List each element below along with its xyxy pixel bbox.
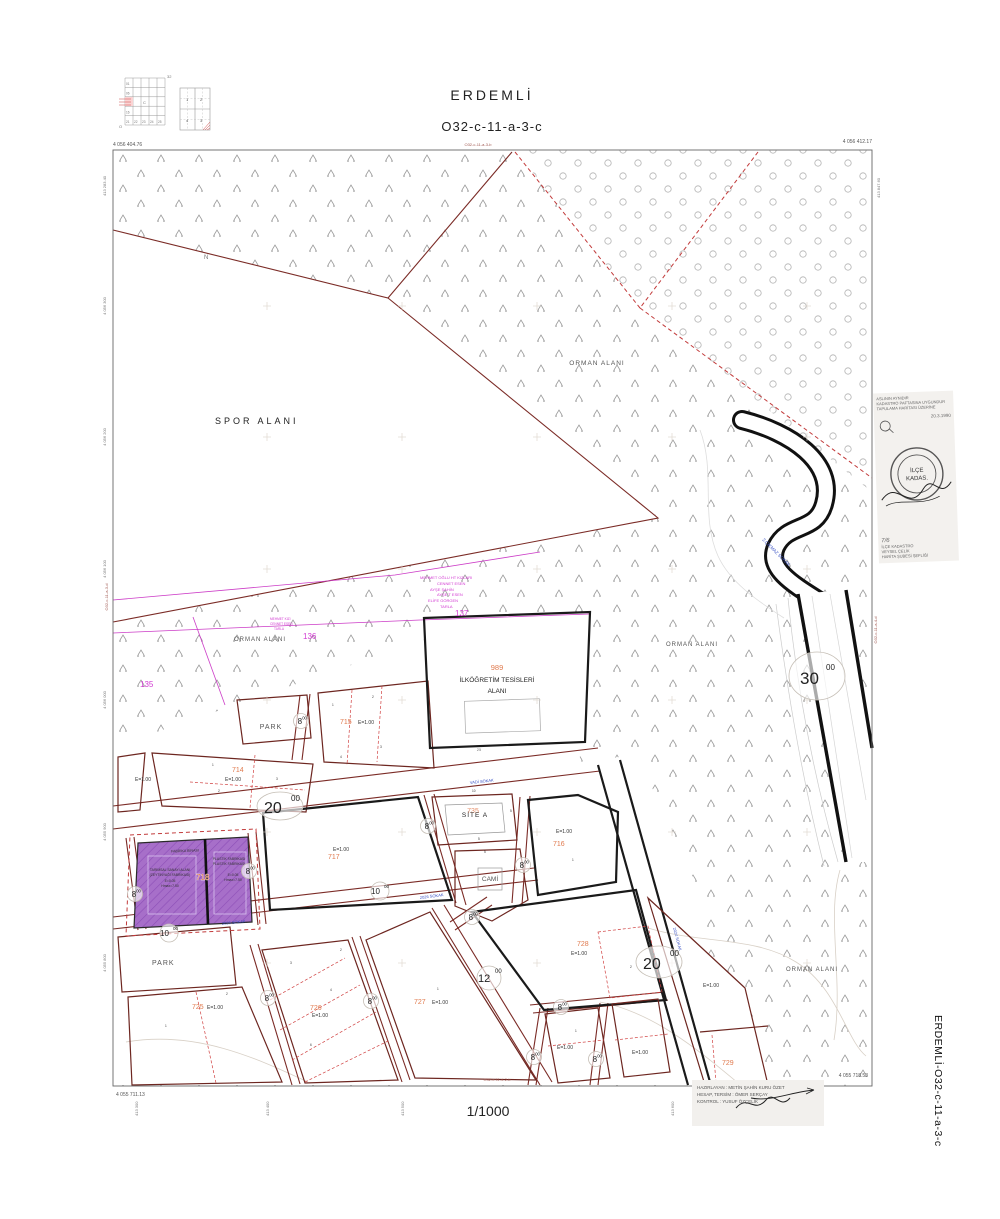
lot-number: 5 [484, 850, 486, 854]
arrow [751, 1088, 814, 1099]
index-cell: 06 [126, 92, 130, 96]
neighbor-right: O32-c-11-a-4-d [873, 616, 878, 643]
easting-label: 413 600 [670, 1101, 675, 1116]
lot-number: 1 [212, 763, 214, 767]
lot-number: 5 [478, 837, 480, 841]
road-width: 10 [160, 929, 169, 938]
road-width-dec: 00 [291, 794, 300, 803]
corner-tl: 4 056 404.76 [113, 142, 142, 148]
index-cell: 16 [126, 111, 130, 115]
road-width-dec: 00 [269, 993, 274, 998]
lot-number: 1 [332, 703, 334, 707]
corner-tl-easting: 413 283.40 [102, 175, 107, 196]
sanayi-line: PLASTİK FABRİKASI [213, 861, 245, 866]
northing-label: 4 055 900 [102, 822, 107, 841]
corner-bl: 4 055 711.13 [116, 1092, 145, 1098]
index-o: O [119, 124, 122, 129]
index-cell: 25 [158, 120, 162, 124]
parcel-number: 729 [722, 1060, 734, 1067]
lot-number: 1 [575, 1029, 577, 1033]
index-cell: 22 [134, 120, 138, 124]
neighbor-top: O32-c-11-a-3-b [464, 142, 492, 147]
sanayi-line: TARIMSAL SANAYİ ALANI [150, 867, 190, 872]
lot-number: 1 [572, 858, 574, 862]
sheet-side-label: ERDEMLİ-O32-c-11-a-3-c [932, 1015, 944, 1175]
e-value: E=1.00 [225, 777, 241, 783]
owner-line: CENNET ESEN [270, 622, 293, 626]
index-cell: 23 [142, 120, 146, 124]
sheet-code: O32-c-11-a-3-c [441, 119, 542, 134]
index-cell: 21 [126, 120, 130, 124]
easting-label: 413 400 [265, 1101, 270, 1116]
parcel-number: 717 [328, 854, 340, 861]
production-signature-block: HAZIRLAYAN : METİN ŞAHİN KURU ÖZET HESAP… [692, 1080, 824, 1126]
northing-label: 4 056 100 [102, 559, 107, 578]
parcel-number: 726 [310, 1005, 322, 1012]
index-grid-1: 01 06 16 C 21 22 23 24 25 32 O [119, 74, 172, 129]
parcel-number: 725 [192, 1004, 204, 1011]
dim-label: 25 [477, 747, 482, 752]
road-width-dec: 00 [429, 821, 434, 826]
e-value: E=1.00 [703, 983, 719, 989]
park-label: PARK [260, 724, 283, 731]
school-label: İLKÖĞRETİM TESİSLERİ [459, 675, 534, 684]
sanayi-line: PLASTİK FABRİKASI [213, 856, 245, 861]
sanayi-line: E=0.05 [165, 879, 176, 883]
lot-number: 4 [340, 755, 342, 759]
quad-label: 4 [186, 118, 189, 123]
owner-line: MEHMET OĞLU HT KIZLARI [420, 575, 472, 580]
e-value: E=1.00 [135, 777, 151, 783]
parcel-number: 714 [232, 767, 244, 774]
index-cell: 24 [150, 120, 154, 124]
parcel-number: 728 [577, 941, 589, 948]
mosque-label: CAMİ [482, 874, 498, 883]
sanayi-line: (ZEYTİNYAĞI FABRİKASI) [150, 872, 191, 877]
e-value: E=1.00 [333, 847, 349, 853]
northing-label: 4 055 800 [102, 953, 107, 972]
forest-label: ORMAN ALANI [666, 642, 718, 648]
parcel-number: 137 [455, 609, 469, 618]
lot-number: 2 [340, 948, 342, 952]
scale-label: 1/1000 [467, 1103, 510, 1119]
seal-text: İLÇE [910, 467, 924, 474]
road-width-dec: 00 [826, 663, 835, 672]
sanayi-line: Hmax=7.50 [161, 884, 179, 888]
index-center: C [143, 100, 146, 105]
road-width: 30 [800, 669, 819, 688]
seal-graphic: İLÇE KADAS. [877, 418, 955, 531]
owner-line: ELİFE GÖRGEN [428, 598, 458, 603]
school-label: ALANI [488, 688, 507, 695]
e-value: E=1.00 [312, 1013, 328, 1019]
forest-label: ORMAN ALANI [234, 637, 286, 643]
road-width: 20 [643, 956, 661, 973]
north-mark: N [204, 255, 208, 261]
e-value: E=1.00 [632, 1050, 648, 1056]
e-value: E=1.00 [207, 1005, 223, 1011]
road-width-dec: 00 [597, 1054, 602, 1059]
northing-label: 4 056 000 [102, 690, 107, 709]
sports-area-label: SPOR ALANI [215, 416, 299, 426]
road-width-dec: 00 [136, 889, 141, 894]
corner-br: 4 055 718.53 [839, 1073, 868, 1079]
parcel-number: 727 [414, 999, 426, 1006]
page-title: ERDEMLİ [450, 86, 533, 103]
lot-number: 3 [290, 961, 292, 965]
forest-label: ORMAN ALANI [786, 967, 838, 973]
lot-number: 4 [330, 988, 332, 992]
parcel-number: 136 [303, 632, 317, 641]
cadastral-map-svg: ERDEMLİ O32-c-11-a-3-c 01 06 16 C 21 22 … [0, 0, 1000, 1219]
road-width: 12 [478, 973, 490, 985]
road-width: 20 [264, 800, 282, 817]
parcel-number: 718 [196, 873, 210, 882]
ghost-label: FABRİKA BİNASI [171, 848, 199, 854]
road-width-dec: 00 [384, 884, 390, 889]
lot-number: 2 [630, 965, 632, 969]
parcel-number: 716 [553, 841, 565, 848]
lot-number: 6 [310, 1043, 312, 1047]
park-label: PARK [152, 960, 175, 967]
road-width-dec: 00 [173, 926, 179, 931]
lot-number: 5 [510, 809, 512, 813]
sanayi-line: E=0.05 [228, 873, 239, 877]
approval-stamp-block: ASLININ AYNIDIR KADASTRO PAFTASINA UYGUN… [873, 391, 959, 564]
e-value: E=1.00 [571, 951, 587, 957]
corner-tr-easting: 413 847.60 [876, 177, 881, 198]
neighbor-bottom: O32-c-11-d-2-b [483, 1077, 511, 1082]
lot-number: 2 [218, 789, 220, 793]
seal-text: KADAS. [906, 476, 929, 483]
corner-tr: 4 056 412.17 [843, 139, 872, 145]
e-value: E=1.00 [358, 720, 374, 726]
e-value: E=1.00 [556, 829, 572, 835]
road-width-dec: 00 [535, 1052, 540, 1057]
owner-line: MEHMET KIZI [270, 617, 291, 621]
lot-number: 2 [372, 695, 374, 699]
lot-number: 3 [380, 745, 382, 749]
road-width-dec: 00 [562, 1002, 567, 1007]
road-width-dec: 00 [372, 996, 377, 1001]
site-a-label: SİTE A [462, 810, 488, 819]
forest-label: ORMAN ALANI [569, 360, 624, 367]
road-width-dec: 00 [524, 860, 529, 865]
lot-number: 3 [276, 777, 278, 781]
owner-line: TARLA [440, 604, 453, 609]
school-number: 989 [491, 663, 504, 672]
lot-number: 2 [226, 992, 228, 996]
lot-number: 1 [165, 1024, 167, 1028]
sig-graphic [696, 1086, 820, 1116]
index-corner: 32 [167, 74, 172, 79]
quad-label: 1 [186, 97, 189, 102]
northing-label: 4 056 200 [102, 427, 107, 446]
e-value: E=1.00 [432, 1000, 448, 1006]
owner-line: TARLA [274, 627, 285, 631]
road-width-dec: 00 [495, 969, 502, 975]
parcel-number: 135 [140, 680, 154, 689]
index-cell: 01 [126, 82, 130, 86]
lot-number: 10 [472, 789, 476, 793]
neighbor-left: O32-c-11-a-3-d [104, 583, 109, 610]
road-width: 10 [371, 887, 380, 896]
road-width-dec: 00 [302, 716, 307, 721]
e-value: E=1.00 [557, 1045, 573, 1051]
road-width-dec: 00 [473, 912, 478, 917]
lot-number: 1 [437, 987, 439, 991]
easting-label: 413 300 [134, 1101, 139, 1116]
cadastral-sheet: ERDEMLİ O32-c-11-a-3-c 01 06 16 C 21 22 … [0, 0, 1000, 1219]
parcel-number: 715 [340, 719, 352, 726]
owner-line: CENNET ESEN [437, 581, 465, 586]
index-grid-2: 1 2 4 3 [180, 88, 210, 130]
sanayi-line: Hmax=7.50 [224, 878, 242, 882]
easting-label: 413 500 [400, 1101, 405, 1116]
road-width-dec: 00 [250, 866, 255, 871]
owner-line: AYŞE T ESEN [437, 592, 463, 597]
northing-label: 4 056 300 [102, 296, 107, 315]
